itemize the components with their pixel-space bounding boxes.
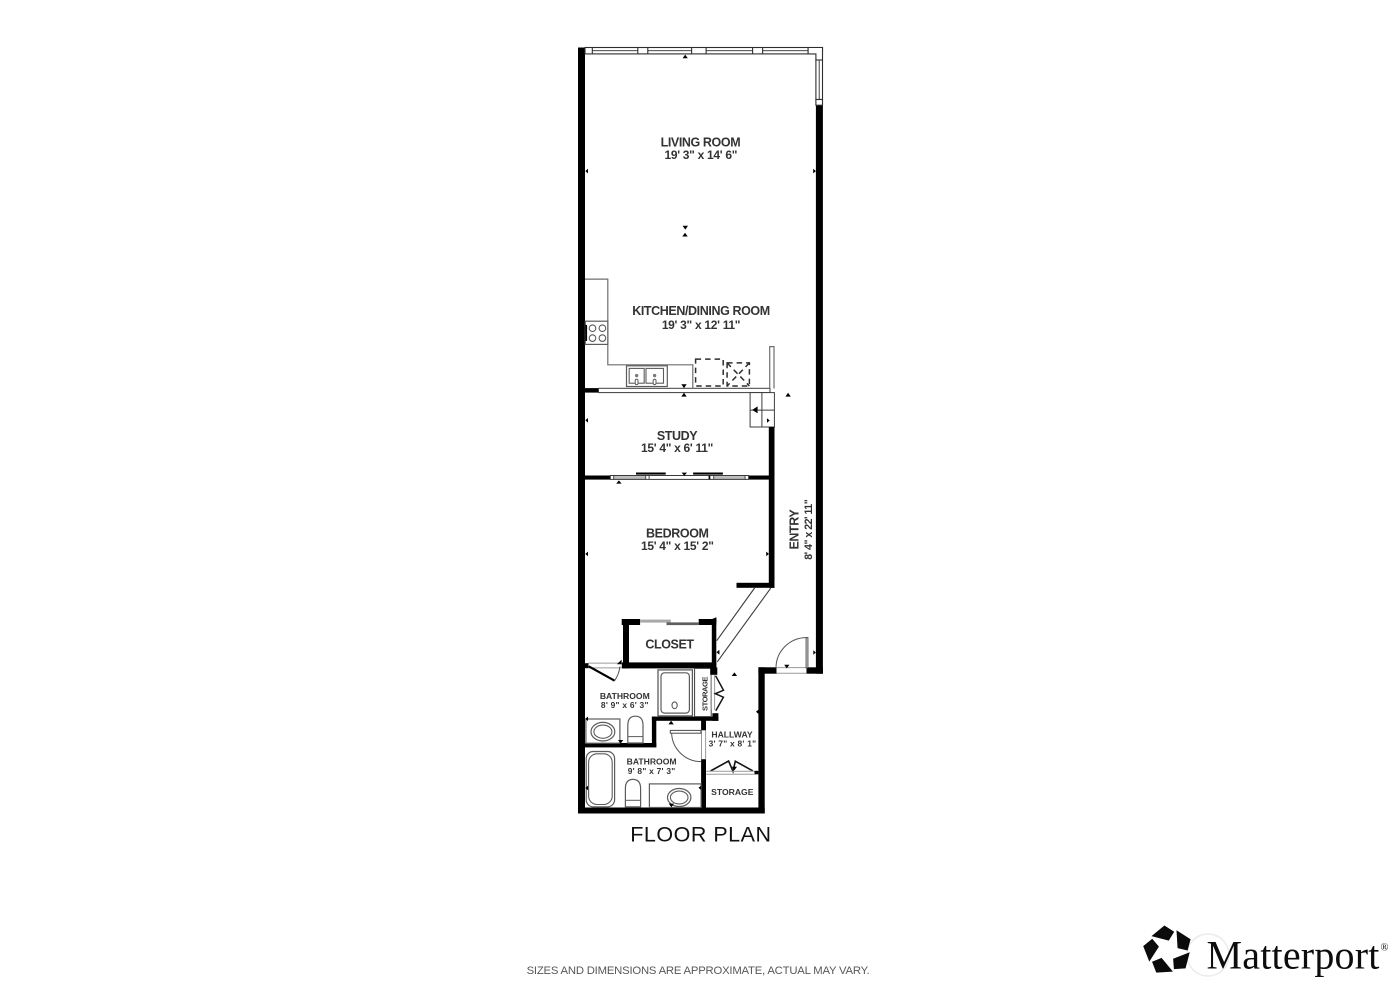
svg-text:FLOOR PLAN: FLOOR PLAN [630, 822, 771, 846]
svg-text:ENTRY: ENTRY [788, 509, 802, 550]
svg-text:KITCHEN/DINING ROOM: KITCHEN/DINING ROOM [632, 304, 770, 318]
svg-text:CLOSET: CLOSET [645, 638, 694, 652]
svg-text:®: ® [1381, 943, 1389, 954]
svg-text:STORAGE: STORAGE [711, 787, 754, 797]
svg-text:15' 4" x 6' 11": 15' 4" x 6' 11" [641, 441, 713, 455]
svg-text:SIZES AND DIMENSIONS ARE APPRO: SIZES AND DIMENSIONS ARE APPROXIMATE, AC… [527, 965, 870, 977]
svg-text:Matterport: Matterport [1207, 933, 1380, 978]
svg-text:15' 4" x 15' 2": 15' 4" x 15' 2" [641, 539, 714, 553]
svg-text:19' 3" x 12' 11": 19' 3" x 12' 11" [662, 318, 740, 332]
svg-text:3' 7" x 8' 1": 3' 7" x 8' 1" [709, 739, 757, 749]
svg-text:9' 8" x 7' 3": 9' 8" x 7' 3" [628, 766, 676, 776]
svg-text:STORAGE: STORAGE [701, 677, 710, 711]
svg-text:8' 4" x 22' 11": 8' 4" x 22' 11" [803, 499, 815, 559]
svg-text:8' 9" x 6' 3": 8' 9" x 6' 3" [601, 700, 649, 710]
svg-text:19' 3" x 14' 6": 19' 3" x 14' 6" [664, 148, 737, 162]
